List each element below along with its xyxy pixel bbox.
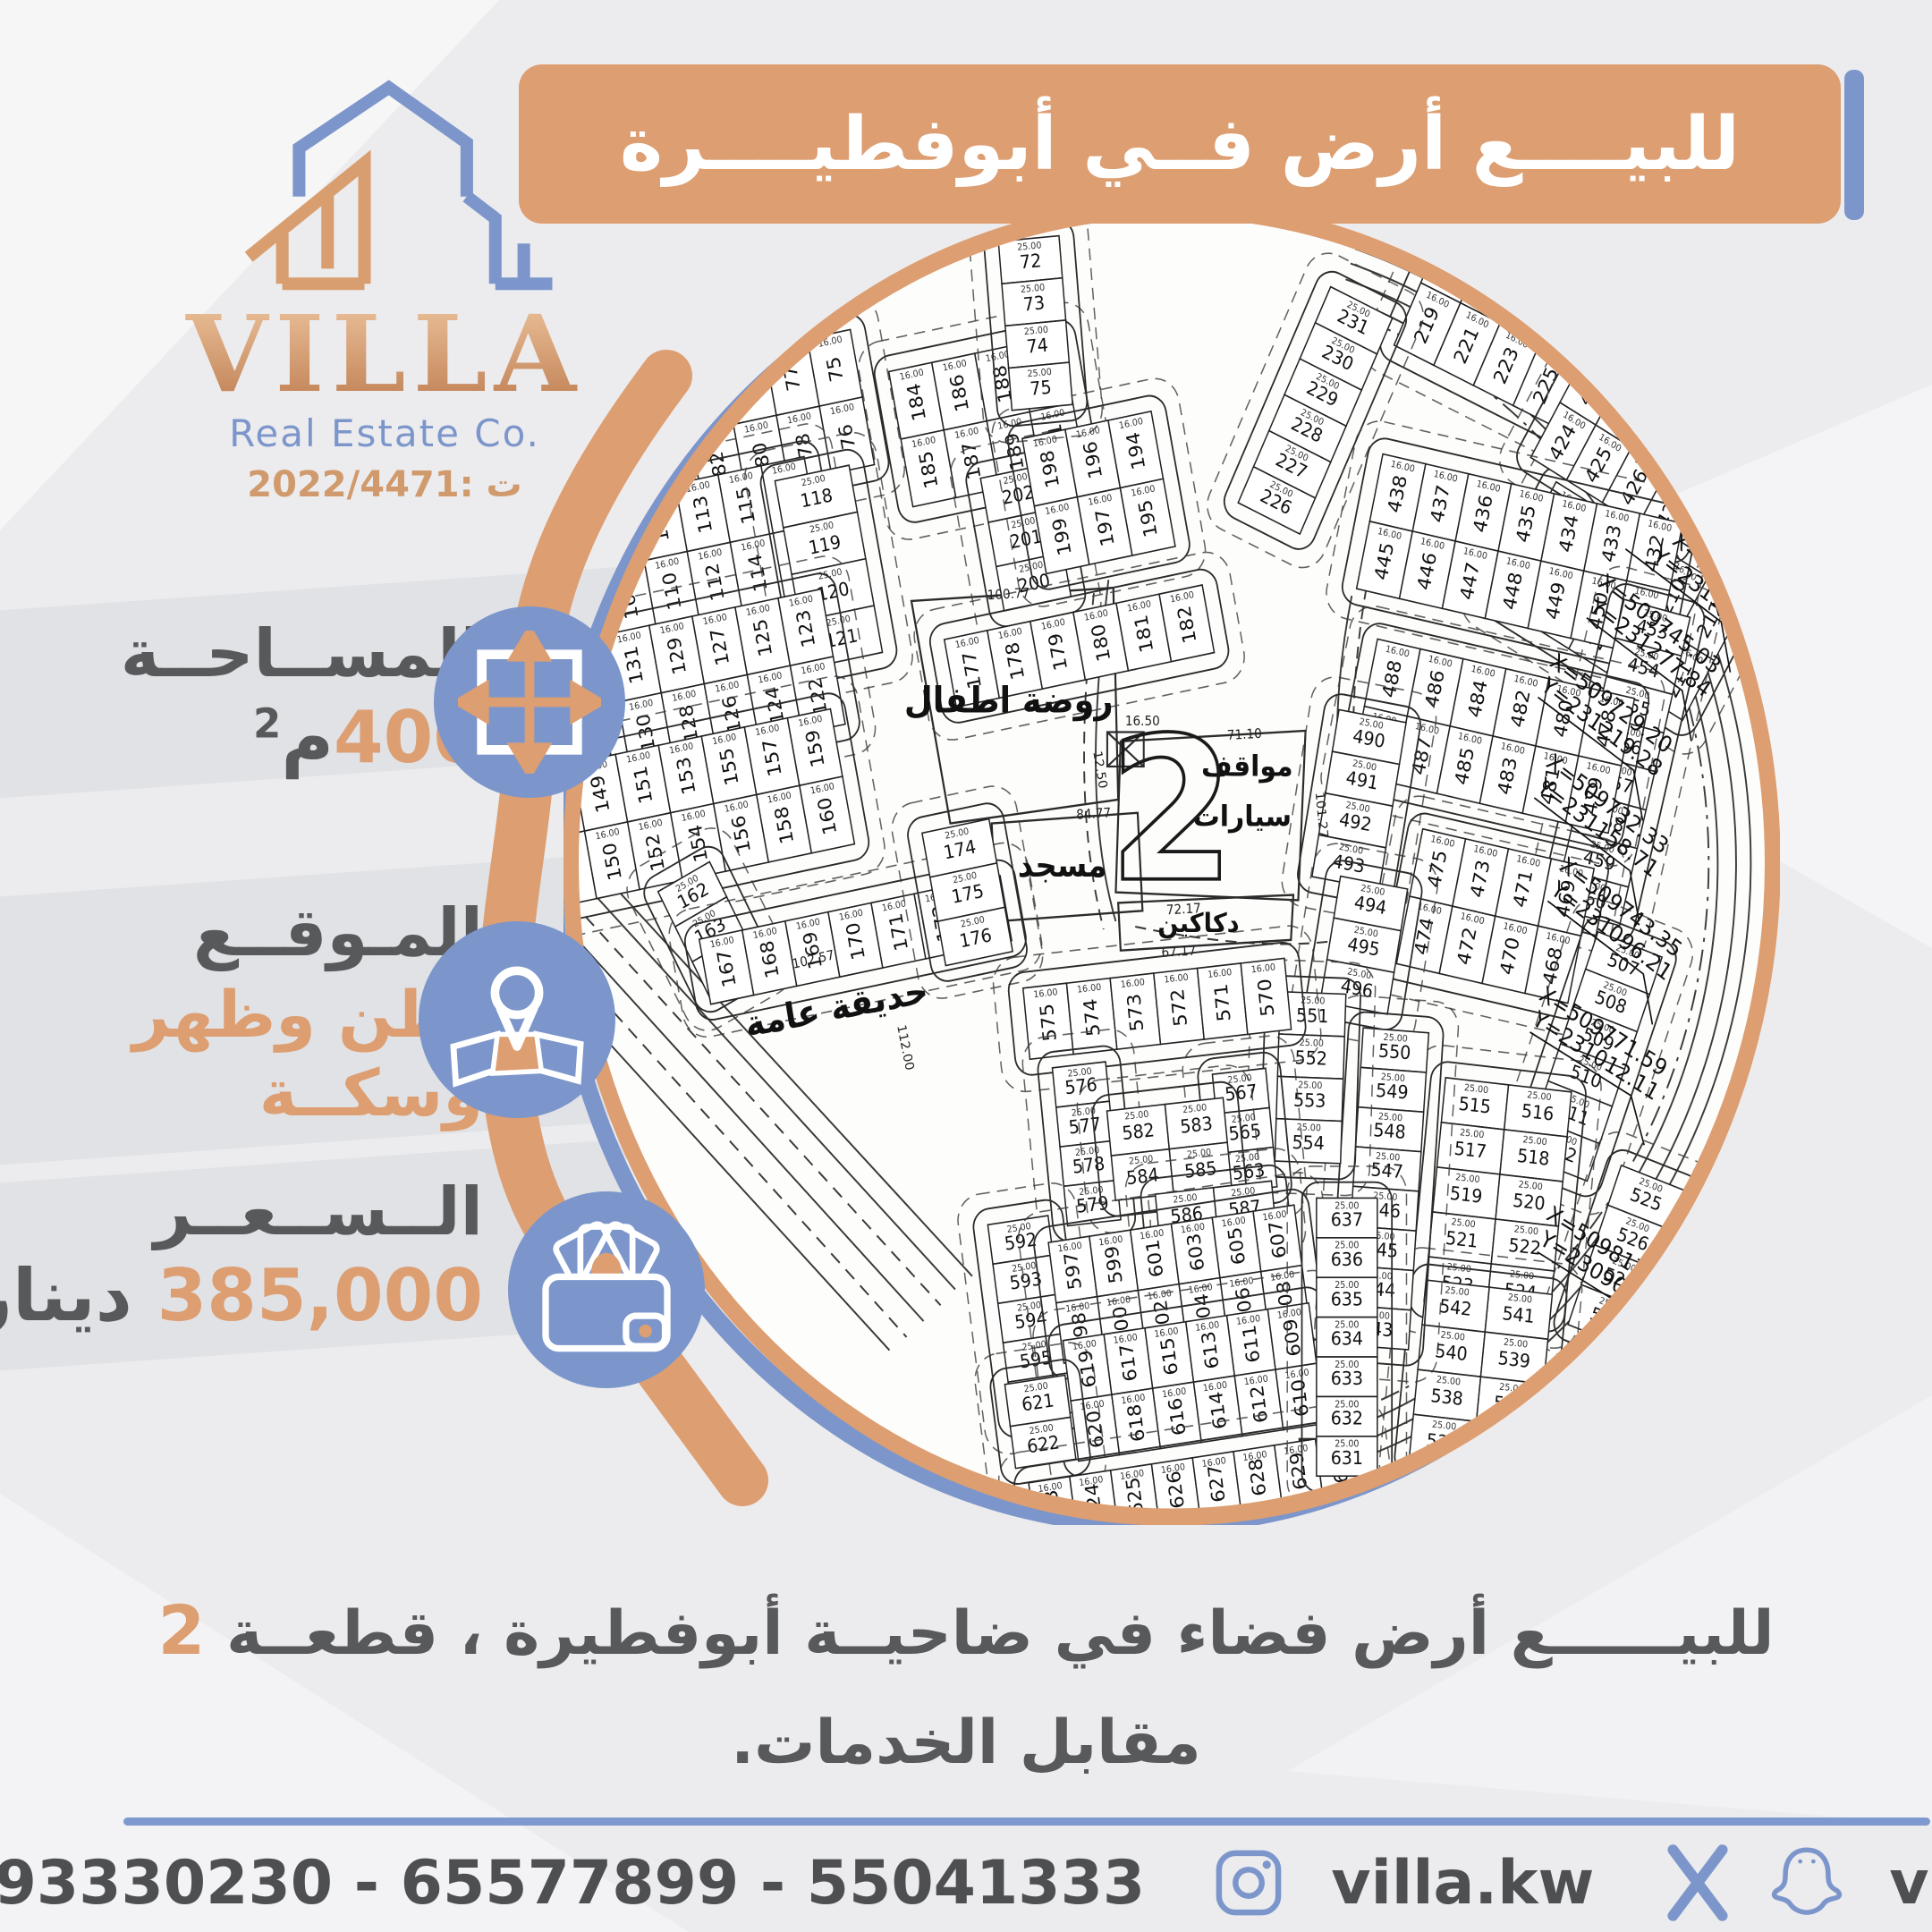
location-label: المـوقــع xyxy=(54,894,483,971)
svg-text:417: 417 xyxy=(1646,411,1682,455)
svg-text:548: 548 xyxy=(1373,1119,1407,1143)
instagram-handle[interactable]: villa.kw xyxy=(1331,1848,1594,1919)
svg-text:635: 635 xyxy=(1331,1289,1363,1310)
svg-text:109: 109 xyxy=(604,512,631,554)
svg-text:571: 571 xyxy=(1211,982,1236,1022)
piece-number: 2 xyxy=(158,1590,206,1670)
svg-text:552: 552 xyxy=(1294,1047,1327,1070)
svg-text:16.00: 16.00 xyxy=(563,507,582,522)
svg-text:515: 515 xyxy=(1458,1093,1492,1118)
footer-contact-bar: 93330230 - 65577899 - 55041333 villa.kw … xyxy=(0,1834,1932,1932)
svg-text:551: 551 xyxy=(1296,1004,1329,1027)
svg-text:518: 518 xyxy=(1516,1145,1550,1170)
svg-text:416: 416 xyxy=(1682,433,1717,478)
svg-text:576: 576 xyxy=(1063,1074,1097,1099)
svg-text:535: 535 xyxy=(1488,1436,1522,1462)
footer-divider xyxy=(123,1818,1930,1826)
svg-text:67.17: 67.17 xyxy=(1161,944,1197,961)
page-title: للبيــــع أرض فــي أبوفطيــــرة xyxy=(620,102,1740,187)
area-value: 400م2 xyxy=(18,696,483,779)
svg-text:553: 553 xyxy=(1293,1089,1326,1112)
price-value: 385,000 دينار xyxy=(18,1254,483,1337)
svg-text:563: 563 xyxy=(1232,1159,1266,1184)
svg-text:570: 570 xyxy=(1254,978,1279,1018)
svg-text:585: 585 xyxy=(1183,1157,1217,1182)
svg-text:542: 542 xyxy=(1438,1295,1472,1320)
svg-text:578: 578 xyxy=(1072,1153,1106,1178)
svg-text:636: 636 xyxy=(1331,1249,1363,1270)
svg-text:16.00: 16.00 xyxy=(1590,355,1616,377)
svg-text:549: 549 xyxy=(1375,1080,1409,1104)
location-value-line2: وسكــة xyxy=(18,1055,483,1131)
svg-text:547: 547 xyxy=(1370,1159,1404,1183)
svg-text:632: 632 xyxy=(1331,1408,1363,1429)
expand-arrows-icon xyxy=(458,631,601,774)
description-line1: للبيــــــع أرض فضاء في ضاحيــة أبوفطيرة… xyxy=(226,1598,1774,1669)
svg-text:516: 516 xyxy=(1521,1100,1555,1125)
location-icon-circle xyxy=(419,921,615,1118)
header-accent-bar xyxy=(1844,70,1864,220)
svg-text:69: 69 xyxy=(674,315,699,344)
svg-text:74: 74 xyxy=(1026,335,1049,358)
mosque-label: مسجد xyxy=(1018,846,1107,885)
svg-text:16.00: 16.00 xyxy=(568,575,594,590)
svg-text:16.00: 16.00 xyxy=(1570,288,1596,309)
svg-text:572: 572 xyxy=(1167,987,1192,1028)
snapchat-icon[interactable] xyxy=(1766,1842,1848,1924)
price-label: الــســعــر xyxy=(54,1174,483,1250)
svg-text:610: 610 xyxy=(1288,1377,1314,1419)
svg-text:519: 519 xyxy=(1449,1182,1483,1207)
svg-text:583: 583 xyxy=(1179,1113,1213,1138)
svg-text:16.50: 16.50 xyxy=(1125,715,1160,730)
svg-text:540: 540 xyxy=(1434,1340,1468,1365)
brand-tagline: Real Estate Co. xyxy=(107,411,662,455)
svg-text:222: 222 xyxy=(1516,281,1550,325)
svg-text:25.00: 25.00 xyxy=(1495,1427,1520,1439)
svg-text:71: 71 xyxy=(716,306,741,335)
svg-text:601: 601 xyxy=(1142,1238,1168,1279)
svg-text:16.00: 16.00 xyxy=(711,286,737,301)
svg-text:84.77: 84.77 xyxy=(1076,806,1112,823)
svg-text:582: 582 xyxy=(1121,1119,1155,1144)
brand-name: VILLA xyxy=(107,299,662,410)
svg-text:541: 541 xyxy=(1501,1302,1535,1327)
description-line2: مقابل الخدمات. xyxy=(107,1690,1825,1796)
svg-text:75: 75 xyxy=(1030,377,1053,400)
svg-text:16.00: 16.00 xyxy=(1662,400,1688,422)
svg-text:584: 584 xyxy=(1125,1165,1159,1190)
social-handle[interactable]: villa_kw xyxy=(1889,1848,1932,1919)
area-icon-circle xyxy=(434,606,625,798)
svg-text:16.00: 16.00 xyxy=(668,295,694,310)
svg-text:16.00: 16.00 xyxy=(1491,248,1517,268)
price-icon-circle xyxy=(508,1191,705,1388)
svg-text:538: 538 xyxy=(1429,1385,1463,1410)
area-label: المســاحــة xyxy=(54,615,483,692)
map-pin-icon xyxy=(444,946,590,1093)
svg-text:633: 633 xyxy=(1331,1368,1363,1389)
wallet-money-icon xyxy=(530,1214,682,1366)
svg-text:16.00: 16.00 xyxy=(732,352,758,368)
instagram-icon[interactable] xyxy=(1207,1842,1290,1924)
svg-text:100.77: 100.77 xyxy=(987,586,1030,603)
svg-text:637: 637 xyxy=(1331,1209,1363,1231)
svg-text:16.00: 16.00 xyxy=(1698,422,1724,445)
svg-text:577: 577 xyxy=(1068,1114,1102,1139)
svg-text:73: 73 xyxy=(1022,292,1046,316)
svg-text:107: 107 xyxy=(563,521,589,563)
header-banner: للبيــــع أرض فــي أبوفطيــــرة xyxy=(519,64,1841,224)
svg-text:16.00: 16.00 xyxy=(1530,268,1556,289)
svg-text:565: 565 xyxy=(1228,1120,1262,1145)
brand-license: ت :2022/4471 xyxy=(107,464,662,505)
svg-text:16.00: 16.00 xyxy=(1626,377,1652,400)
description: للبيــــــع أرض فضاء في ضاحيــة أبوفطيرة… xyxy=(107,1571,1825,1796)
svg-text:612: 612 xyxy=(1247,1384,1273,1425)
x-twitter-icon[interactable] xyxy=(1657,1842,1739,1924)
svg-text:16.00: 16.00 xyxy=(1451,228,1477,249)
svg-text:539: 539 xyxy=(1497,1347,1531,1372)
svg-text:573: 573 xyxy=(1123,993,1148,1033)
svg-text:72.17: 72.17 xyxy=(1166,902,1202,919)
svg-text:81: 81 xyxy=(694,382,719,411)
svg-text:520: 520 xyxy=(1512,1190,1546,1215)
svg-text:76: 76 xyxy=(835,422,860,452)
svg-text:634: 634 xyxy=(1331,1328,1363,1350)
svg-text:16.00: 16.00 xyxy=(689,362,715,377)
svg-text:75: 75 xyxy=(823,354,848,384)
svg-text:521: 521 xyxy=(1445,1227,1479,1252)
location-value-line1: بطن وظهر xyxy=(18,977,483,1052)
svg-text:72: 72 xyxy=(1019,250,1042,273)
svg-text:615: 615 xyxy=(1157,1336,1182,1377)
svg-text:517: 517 xyxy=(1453,1138,1487,1163)
phone-numbers[interactable]: 93330230 - 65577899 - 55041333 xyxy=(0,1848,1145,1919)
svg-text:574: 574 xyxy=(1080,997,1105,1038)
svg-text:224: 224 xyxy=(1556,301,1590,345)
svg-text:554: 554 xyxy=(1292,1131,1325,1154)
svg-text:631: 631 xyxy=(1331,1447,1363,1469)
kindergarten-label: روضة اطفال xyxy=(904,680,1114,722)
svg-text:599: 599 xyxy=(1101,1244,1127,1285)
svg-text:550: 550 xyxy=(1377,1040,1411,1064)
cadastral-map: 16.006716.006916.007116.008716.008516.00… xyxy=(563,201,1780,1525)
svg-text:71.10: 71.10 xyxy=(1227,726,1263,743)
svg-text:603: 603 xyxy=(1183,1232,1209,1273)
parking-block-number: 2 xyxy=(1108,696,1235,927)
